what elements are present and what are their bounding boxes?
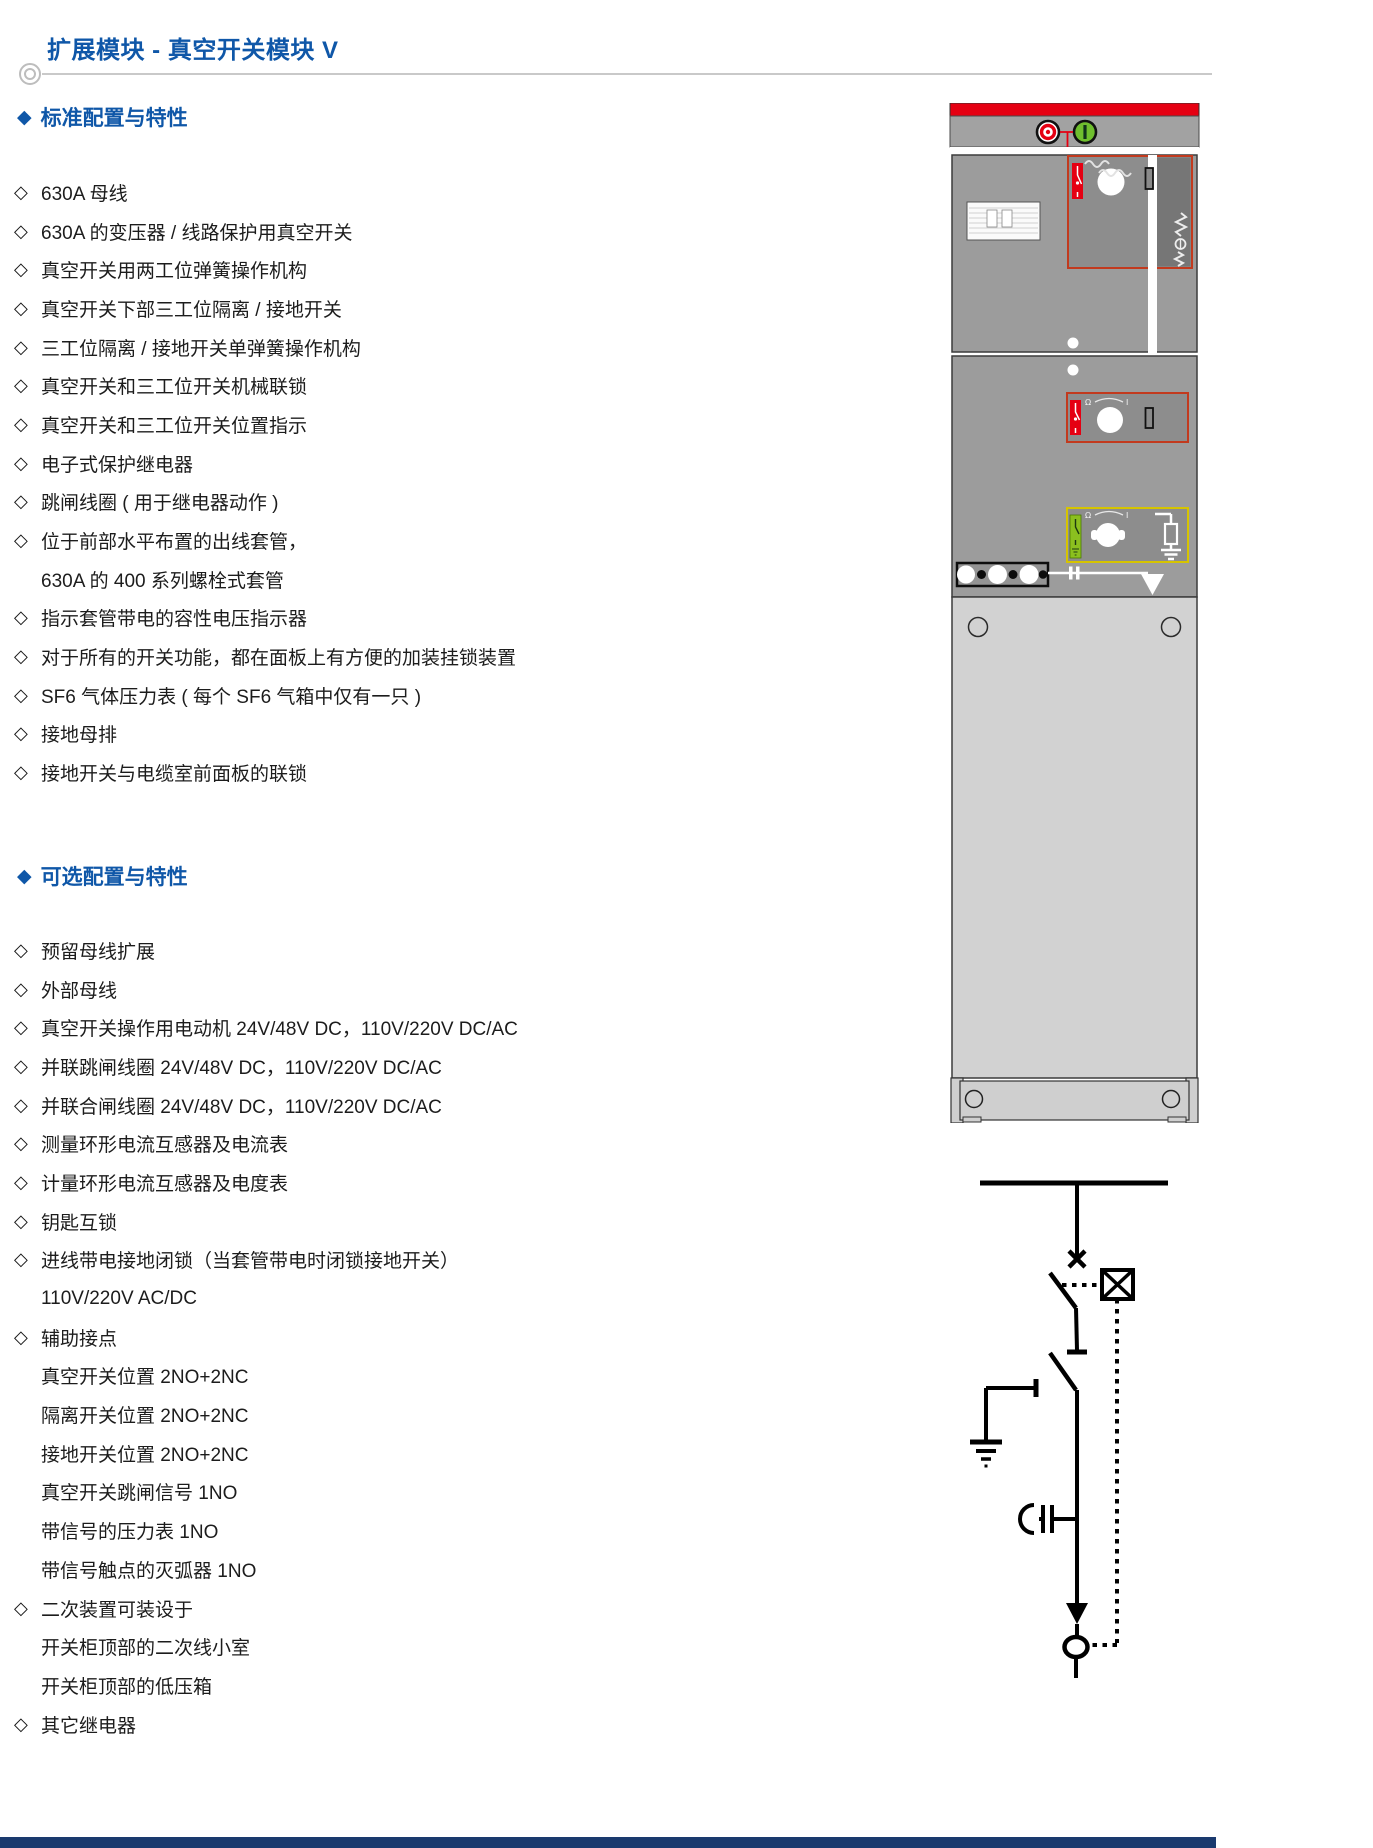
red-top-bar: [950, 103, 1199, 116]
standard-feature-list: ◇630A 母线◇630A 的变压器 / 线路保护用真空开关◇真空开关用两工位弹…: [14, 173, 516, 792]
list-item: ◇隔离开关位置 2NO+2NC: [14, 1395, 518, 1434]
list-item: ◇真空开关跳闸信号 1NO: [14, 1473, 518, 1512]
list-item: ◇开关柜顶部的二次线小室: [14, 1627, 518, 1666]
diamond-bullet-icon: ◇: [14, 1095, 41, 1116]
list-item: ◇三工位隔离 / 接地开关单弹簧操作机构: [14, 328, 516, 367]
list-item-text: 位于前部水平布置的出线套管，: [41, 527, 307, 554]
diamond-bullet-icon: ◇: [14, 940, 41, 961]
diamond-bullet-icon: ◇: [14, 1211, 41, 1232]
list-item: ◇并联跳闸线圈 24V/48V DC，110V/220V DC/AC: [14, 1047, 518, 1086]
list-item-text: 并联跳闸线圈 24V/48V DC，110V/220V DC/AC: [41, 1053, 442, 1080]
list-item: ◇带信号的压力表 1NO: [14, 1511, 518, 1550]
three-position-switch-panel: Ω I: [1067, 393, 1188, 442]
list-item-text: 进线带电接地闭锁（当套管带电时闭锁接地开关）: [41, 1246, 459, 1273]
list-item: ◇真空开关用两工位弹簧操作机构: [14, 250, 516, 289]
list-item-text: 真空开关操作用电动机 24V/48V DC，110V/220V DC/AC: [41, 1014, 518, 1041]
vacuum-switch-operating-panel: [1068, 156, 1192, 268]
list-item: ◇真空开关位置 2NO+2NC: [14, 1357, 518, 1396]
list-item: ◇带信号触点的灭弧器 1NO: [14, 1550, 518, 1589]
page-title: 扩展模块 - 真空开关模块 V: [47, 30, 339, 65]
diamond-bullet-icon: ◇: [14, 1327, 41, 1348]
list-item-text: 真空开关下部三工位隔离 / 接地开关: [41, 295, 342, 322]
list-item-text: 其它继电器: [41, 1711, 136, 1738]
list-item: ◇110V/220V AC/DC: [14, 1279, 518, 1318]
list-item-text: 辅助接点: [41, 1324, 117, 1351]
connector-bars: [1076, 567, 1080, 580]
list-item-text: 接地开关与电缆室前面板的联锁: [41, 759, 307, 786]
diamond-bullet-icon: ◇: [14, 182, 41, 203]
diamond-bullet-icon: ◇: [14, 259, 41, 280]
vacuum-breaker-blade: [1050, 1353, 1076, 1390]
operating-knob: [1098, 169, 1125, 196]
list-item: ◇辅助接点: [14, 1318, 518, 1357]
diamond-bullet-icon: ◇: [14, 762, 41, 783]
list-item-text: 110V/220V AC/DC: [41, 1288, 197, 1310]
single-line-diagram: [950, 1175, 1180, 1690]
connector-bars: [1069, 567, 1073, 580]
svg-text:I: I: [1126, 511, 1128, 520]
white-stripe: [950, 147, 1199, 155]
diamond-bullet-icon: ◇: [14, 298, 41, 319]
svg-text:Ω: Ω: [1085, 511, 1091, 520]
diamond-bullet-icon: ◇: [14, 453, 41, 474]
footer-color-bar: [0, 1837, 1216, 1848]
list-item-text: 二次装置可装设于: [41, 1595, 193, 1622]
list-item-text: 630A 母线: [41, 179, 128, 206]
list-item-text: 三工位隔离 / 接地开关单弹簧操作机构: [41, 334, 361, 361]
list-item: ◇真空开关和三工位开关位置指示: [14, 405, 516, 444]
off-button: [1037, 121, 1059, 143]
panel-screw: [1068, 338, 1079, 349]
list-item-text: 开关柜顶部的低压箱: [41, 1672, 212, 1699]
shutter-handle: [1146, 408, 1154, 428]
list-item-text: 外部母线: [41, 976, 117, 1003]
diamond-bullet-icon: ◇: [14, 375, 41, 396]
list-item-text: 630A 的 400 系列螺栓式套管: [41, 566, 284, 593]
capacitive-voltage-indicator: [1020, 1505, 1077, 1533]
list-item: ◇位于前部水平布置的出线套管，: [14, 521, 516, 560]
diamond-bullet-icon: ◇: [14, 1056, 41, 1077]
list-item: ◇对于所有的开关功能，都在面板上有方便的加装挂锁装置: [14, 637, 516, 676]
diamond-bullet-icon: ◇: [14, 1714, 41, 1735]
solid-diamond-icon: ◆: [17, 108, 32, 127]
diamond-bullet-icon: ◇: [14, 646, 41, 667]
list-item-text: 隔离开关位置 2NO+2NC: [41, 1401, 248, 1428]
switchgear-cabinet-figure: Ω I Ω I: [949, 103, 1200, 1123]
list-item-text: 真空开关位置 2NO+2NC: [41, 1362, 248, 1389]
list-item: ◇630A 母线: [14, 173, 516, 212]
shutter-handle: [1146, 168, 1154, 189]
list-item-text: 接地母排: [41, 720, 117, 747]
list-item-text: 带信号的压力表 1NO: [41, 1517, 218, 1544]
switch-link: [1076, 1308, 1077, 1350]
diamond-bullet-icon: ◇: [14, 607, 41, 628]
list-item: ◇630A 的 400 系列螺栓式套管: [14, 560, 516, 599]
diamond-bullet-icon: ◇: [14, 530, 41, 551]
list-item: ◇并联合闸线圈 24V/48V DC，110V/220V DC/AC: [14, 1086, 518, 1125]
list-item-text: 并联合闸线圈 24V/48V DC，110V/220V DC/AC: [41, 1092, 442, 1119]
list-item: ◇指示套管带电的容性电压指示器: [14, 599, 516, 638]
list-item: ◇开关柜顶部的低压箱: [14, 1666, 518, 1705]
diamond-bullet-icon: ◇: [14, 1133, 41, 1154]
section-heading-text: 标准配置与特性: [41, 102, 188, 132]
list-item: ◇SF6 气体压力表 ( 每个 SF6 气箱中仅有一只 ): [14, 676, 516, 715]
list-item: ◇进线带电接地闭锁（当套管带电时闭锁接地开关）: [14, 1241, 518, 1280]
section-heading-standard: ◆ 标准配置与特性: [17, 102, 188, 132]
diamond-bullet-icon: ◇: [14, 979, 41, 1000]
list-item-text: 带信号触点的灭弧器 1NO: [41, 1556, 256, 1583]
diamond-bullet-icon: ◇: [14, 1249, 41, 1270]
diamond-bullet-icon: ◇: [14, 414, 41, 435]
ground-symbol: [970, 1442, 1002, 1466]
list-item: ◇真空开关操作用电动机 24V/48V DC，110V/220V DC/AC: [14, 1008, 518, 1047]
list-item-text: 真空开关和三工位开关机械联锁: [41, 372, 307, 399]
diamond-bullet-icon: ◇: [14, 491, 41, 512]
cable-bushing-bar: [957, 563, 1048, 586]
list-item: ◇电子式保护继电器: [14, 444, 516, 483]
list-item-text: 跳闸线圈 ( 用于继电器动作 ): [41, 488, 279, 515]
diamond-bullet-icon: ◇: [14, 221, 41, 242]
diamond-bullet-icon: ◇: [14, 685, 41, 706]
cable-compartment-door: [952, 597, 1197, 1078]
section-heading-optional: ◆ 可选配置与特性: [17, 861, 188, 891]
optional-feature-list: ◇预留母线扩展◇外部母线◇真空开关操作用电动机 24V/48V DC，110V/…: [14, 931, 518, 1743]
list-item: ◇接地开关位置 2NO+2NC: [14, 1434, 518, 1473]
list-item: ◇接地开关与电缆室前面板的联锁: [14, 753, 516, 792]
list-item: ◇预留母线扩展: [14, 931, 518, 970]
diamond-bullet-icon: ◇: [14, 1598, 41, 1619]
list-item-text: 真空开关用两工位弹簧操作机构: [41, 256, 307, 283]
earthing-switch-branch: [986, 1379, 1036, 1441]
list-item-text: 预留母线扩展: [41, 937, 155, 964]
list-item-text: 测量环形电流互感器及电流表: [41, 1130, 288, 1157]
diamond-bullet-icon: ◇: [14, 337, 41, 358]
list-item: ◇跳闸线圈 ( 用于继电器动作 ): [14, 483, 516, 522]
three-position-switch-blade: [1050, 1273, 1076, 1308]
list-item: ◇接地母排: [14, 715, 516, 754]
on-button: [1074, 121, 1096, 143]
list-item: ◇真空开关和三工位开关机械联锁: [14, 366, 516, 405]
list-item: ◇计量环形电流互感器及电度表: [14, 1163, 518, 1202]
nameplate: [967, 202, 1040, 240]
list-item-text: 真空开关和三工位开关位置指示: [41, 411, 307, 438]
list-item-text: SF6 气体压力表 ( 每个 SF6 气箱中仅有一只 ): [41, 682, 421, 709]
list-item-text: 计量环形电流互感器及电度表: [41, 1169, 288, 1196]
diamond-bullet-icon: ◇: [14, 723, 41, 744]
operating-knob: [1097, 407, 1123, 433]
catalog-page: 扩展模块 - 真空开关模块 V ◆ 标准配置与特性 ◇630A 母线◇630A …: [0, 0, 1373, 1848]
cable-termination-circle: [1065, 1637, 1088, 1657]
list-item: ◇测量环形电流互感器及电流表: [14, 1124, 518, 1163]
list-item-text: 电子式保护继电器: [41, 450, 193, 477]
base-plinth: [951, 1078, 1198, 1123]
list-item-text: 630A 的变压器 / 线路保护用真空开关: [41, 218, 352, 245]
list-item-text: 对于所有的开关功能，都在面板上有方便的加装挂锁装置: [41, 643, 516, 670]
list-item-text: 开关柜顶部的二次线小室: [41, 1633, 250, 1660]
list-item-text: 钥匙互锁: [41, 1208, 117, 1235]
diamond-bullet-icon: ◇: [14, 1017, 41, 1038]
panel-screw: [1068, 365, 1079, 376]
list-item: ◇钥匙互锁: [14, 1202, 518, 1241]
svg-text:Ω: Ω: [1085, 398, 1091, 407]
list-item-text: 接地开关位置 2NO+2NC: [41, 1440, 248, 1467]
list-item: ◇其它继电器: [14, 1705, 518, 1744]
list-item: ◇外部母线: [14, 970, 518, 1009]
list-item: ◇真空开关下部三工位隔离 / 接地开关: [14, 289, 516, 328]
list-item-text: 指示套管带电的容性电压指示器: [41, 604, 307, 631]
list-item: ◇630A 的变压器 / 线路保护用真空开关: [14, 212, 516, 251]
ring-decoration-icon: [19, 63, 41, 85]
section-heading-text: 可选配置与特性: [41, 861, 188, 891]
list-item: ◇二次装置可装设于: [14, 1589, 518, 1628]
header-rule: [42, 73, 1212, 75]
cable-arrow: [1066, 1603, 1088, 1624]
list-item-text: 真空开关跳闸信号 1NO: [41, 1478, 237, 1505]
solid-diamond-icon: ◆: [17, 867, 32, 886]
svg-text:I: I: [1126, 398, 1128, 407]
diamond-bullet-icon: ◇: [14, 1172, 41, 1193]
